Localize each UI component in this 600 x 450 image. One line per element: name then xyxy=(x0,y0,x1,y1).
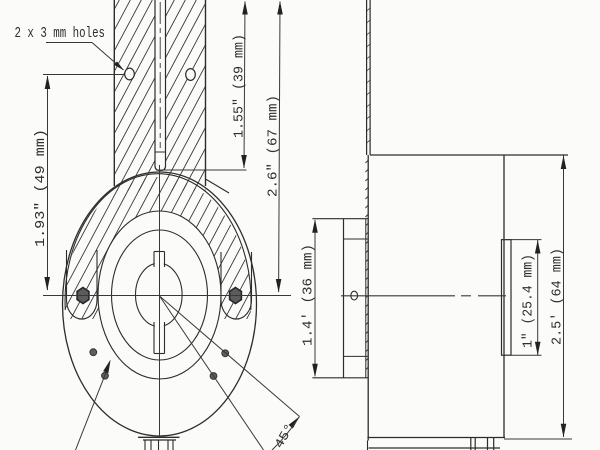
svg-text:2 x 3 mm holes: 2 x 3 mm holes xyxy=(15,25,106,42)
svg-text:1.93″ (49 mm): 1.93″ (49 mm) xyxy=(34,129,49,247)
svg-text:1.4′ (36 mm): 1.4′ (36 mm) xyxy=(302,244,317,346)
svg-text:2.6″ (67 mm): 2.6″ (67 mm) xyxy=(267,95,282,197)
svg-text:1.55″ (39 mm): 1.55″ (39 mm) xyxy=(233,34,248,138)
svg-text:1″ (25.4 mm): 1″ (25.4 mm) xyxy=(522,254,537,348)
svg-text:2.5′ (64 mm): 2.5′ (64 mm) xyxy=(551,248,566,345)
